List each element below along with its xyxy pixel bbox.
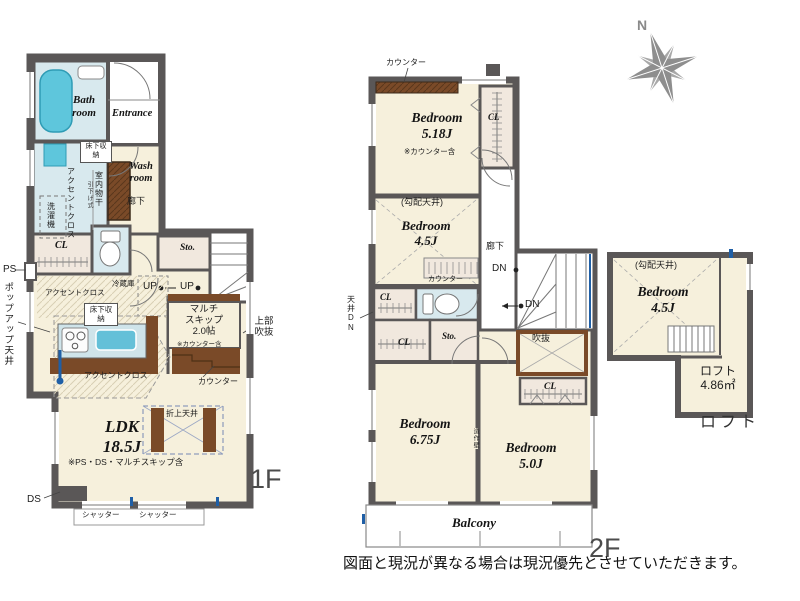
underfloor-storage-label: 床下収納 bbox=[80, 141, 112, 163]
ldk-label: LDK 18.5J bbox=[96, 417, 148, 457]
duct-space-box bbox=[57, 486, 87, 501]
sloped-ceiling-2f-label: (勾配天井) bbox=[401, 197, 443, 208]
void-label: 吹抜 bbox=[532, 333, 550, 344]
closet2-2f-label: CL bbox=[380, 292, 392, 303]
counter-2f-strip bbox=[376, 82, 458, 93]
pull-down-label: 引下げ式 bbox=[85, 181, 92, 209]
wash-room-label: Wash room bbox=[120, 161, 162, 186]
shutter-label-2: シャッター bbox=[139, 511, 177, 520]
loft-title: ロフト bbox=[700, 414, 760, 433]
bedroom1-note: ※カウンター含 bbox=[404, 148, 455, 157]
ldk-size: 18.5J bbox=[96, 437, 148, 457]
closet-1f-label: CL bbox=[55, 240, 68, 252]
compass-north-label: N bbox=[637, 17, 647, 34]
toilet-2f-icon bbox=[423, 294, 459, 314]
bath-room-label: Bath room bbox=[62, 94, 106, 120]
floor1-title: 1F bbox=[250, 464, 282, 496]
duct-space-label: DS bbox=[27, 494, 41, 506]
refrigerator-label: 冷蔵庫 bbox=[112, 280, 135, 289]
pipe-space-box bbox=[25, 263, 36, 280]
bedroom4-name: Bedroom bbox=[500, 440, 562, 456]
loft-bedroom-name: Bedroom bbox=[632, 284, 694, 300]
compass-icon bbox=[614, 20, 710, 116]
multi-skip-line1: マルチ bbox=[176, 304, 232, 315]
kitchen-sink-icon bbox=[96, 330, 136, 350]
sink-icon bbox=[44, 144, 66, 166]
up-label-1: UP bbox=[143, 281, 157, 293]
popup-ceiling-label: ポップアップ天井 bbox=[2, 282, 13, 366]
accent-cloth-kitchen-label: アクセントクロス bbox=[45, 289, 105, 298]
bedroom1-size: 5.18J bbox=[407, 126, 467, 142]
upper-void-label: 上部吹抜 bbox=[253, 316, 275, 338]
stairs-2f bbox=[502, 252, 594, 330]
up-label-2: UP bbox=[180, 281, 194, 293]
partition-wall-label: 造作壁 bbox=[471, 428, 478, 449]
underfloor-storage-kitchen-label: 床下収納 bbox=[84, 303, 118, 326]
closet3-2f-label: CL bbox=[398, 338, 410, 349]
ceiling-down-label: 天井DN bbox=[346, 295, 355, 333]
bedroom3-name: Bedroom bbox=[394, 416, 456, 432]
ldk-name: LDK bbox=[96, 417, 148, 437]
accent-cloth-wash-label: アクセントクロス bbox=[66, 167, 75, 239]
disclaimer-text: 図面と現況が異なる場合は現況優先とさせていただきます。 bbox=[343, 555, 747, 573]
accent-cloth-ldk-label: アクセントクロス bbox=[84, 371, 148, 380]
washbasin-icon bbox=[78, 66, 104, 79]
bedroom4-size: 5.0J bbox=[500, 456, 562, 472]
bedroom1-label: Bedroom 5.18J bbox=[407, 110, 467, 142]
indoor-drying-label: 室内物干 bbox=[94, 171, 103, 207]
bedroom3-label: Bedroom 6.75J bbox=[394, 416, 456, 448]
hallway-1f-label: 廊下 bbox=[127, 196, 145, 207]
bedroom4-label: Bedroom 5.0J bbox=[500, 440, 562, 472]
bedroom2-label: Bedroom 4.5J bbox=[396, 218, 456, 249]
counter-mid-label: カウンター bbox=[428, 276, 463, 284]
coffered-ceiling-label: 折上天井 bbox=[166, 409, 198, 418]
washing-machine-label: 洗濯機 bbox=[46, 202, 55, 229]
counter-1f-label: カウンター bbox=[198, 377, 238, 386]
multi-skip-line2: スキップ bbox=[176, 315, 232, 326]
pipe-space-label: PS bbox=[3, 264, 16, 276]
closet4-2f-label: CL bbox=[544, 382, 556, 393]
balcony-label: Balcony bbox=[452, 515, 496, 530]
hallway-2f-label: 廊下 bbox=[486, 241, 504, 252]
loft-ladder-icon bbox=[668, 326, 714, 352]
bedroom3-size: 6.75J bbox=[394, 432, 456, 448]
toilet-1f-icon bbox=[100, 231, 120, 266]
multi-skip-label: マルチ スキップ 2.0帖 bbox=[176, 304, 232, 338]
entrance-label: Entrance bbox=[112, 108, 152, 120]
counter-2f-label: カウンター bbox=[386, 58, 426, 67]
bedroom1-name: Bedroom bbox=[407, 110, 467, 126]
down-label-1: DN bbox=[492, 263, 506, 275]
bedroom2-size: 4.5J bbox=[396, 233, 456, 248]
shutter-label-1: シャッター bbox=[82, 511, 120, 520]
sloped-ceiling-loft-label: (勾配天井) bbox=[635, 260, 677, 271]
multi-skip-note: ※カウンター含 bbox=[177, 341, 221, 349]
bedroom2-name: Bedroom bbox=[396, 218, 456, 233]
storage-2f-label: Sto. bbox=[442, 331, 456, 342]
storage-1f-label: Sto. bbox=[180, 243, 195, 254]
down-label-2: DN bbox=[525, 299, 539, 311]
closet1-2f-label: CL bbox=[488, 112, 500, 123]
loft-bedroom-label: Bedroom 4.5J bbox=[632, 284, 694, 316]
loft-name: ロフト bbox=[690, 364, 746, 378]
multi-skip-size: 2.0帖 bbox=[176, 326, 232, 337]
ldk-note: ※PS・DS・マルチスキップ含 bbox=[68, 457, 183, 467]
loft-area-label: ロフト 4.86㎡ bbox=[690, 364, 746, 392]
stove-icon bbox=[62, 328, 88, 352]
loft-size: 4.86㎡ bbox=[690, 378, 746, 392]
loft-bedroom-size: 4.5J bbox=[632, 300, 694, 316]
floorplan-page: Bath room Entrance 床下収納 Wash room アクセントク… bbox=[0, 0, 800, 601]
